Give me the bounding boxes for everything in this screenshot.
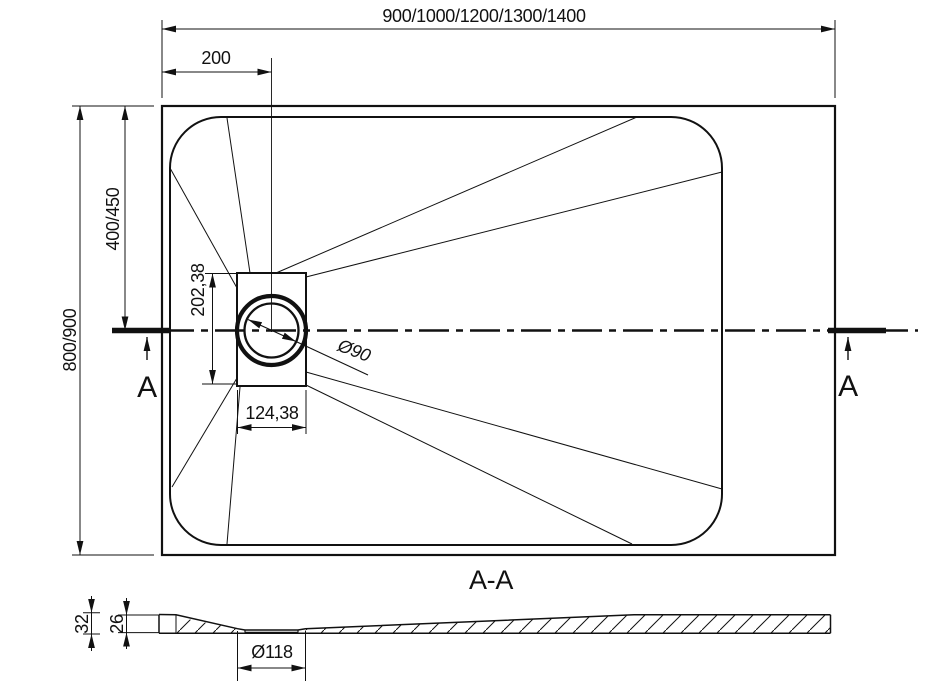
fold-line [172, 378, 237, 487]
recess-height-label: 202,38 [188, 263, 208, 317]
fold-line [306, 172, 722, 277]
base-thickness-label: 26 [107, 614, 127, 634]
section-marker-left-label: A [137, 371, 157, 404]
drain-diameter-label: Ø90 [334, 335, 373, 366]
drain-axis-label: 400/450 [103, 187, 123, 250]
drain-offset-label: 200 [201, 48, 230, 68]
section-cut-marker-right [828, 331, 886, 361]
overall-depth-label: 800/900 [60, 308, 80, 371]
section-marker-right-label: A [838, 370, 858, 403]
fold-line [227, 387, 240, 544]
recess-width-label: 124,38 [245, 403, 299, 423]
technical-drawing-canvas: 900/1000/1200/1300/1400 200 800/900 400/… [0, 0, 928, 686]
section-view [83, 596, 831, 681]
fold-line [276, 117, 637, 273]
overall-width-label: 900/1000/1200/1300/1400 [382, 6, 586, 26]
section-title: A-A [469, 565, 513, 595]
section-hatch-left [177, 617, 238, 633]
overall-height-label: 32 [72, 614, 92, 634]
drain-hole-label: Ø118 [251, 642, 293, 662]
section-dimension-lines [83, 596, 306, 681]
fold-line [306, 372, 722, 489]
technical-drawing: 900/1000/1200/1300/1400 200 800/900 400/… [0, 0, 928, 686]
fold-line [306, 385, 632, 544]
dimension-lines [72, 20, 835, 555]
fold-line [227, 118, 250, 273]
